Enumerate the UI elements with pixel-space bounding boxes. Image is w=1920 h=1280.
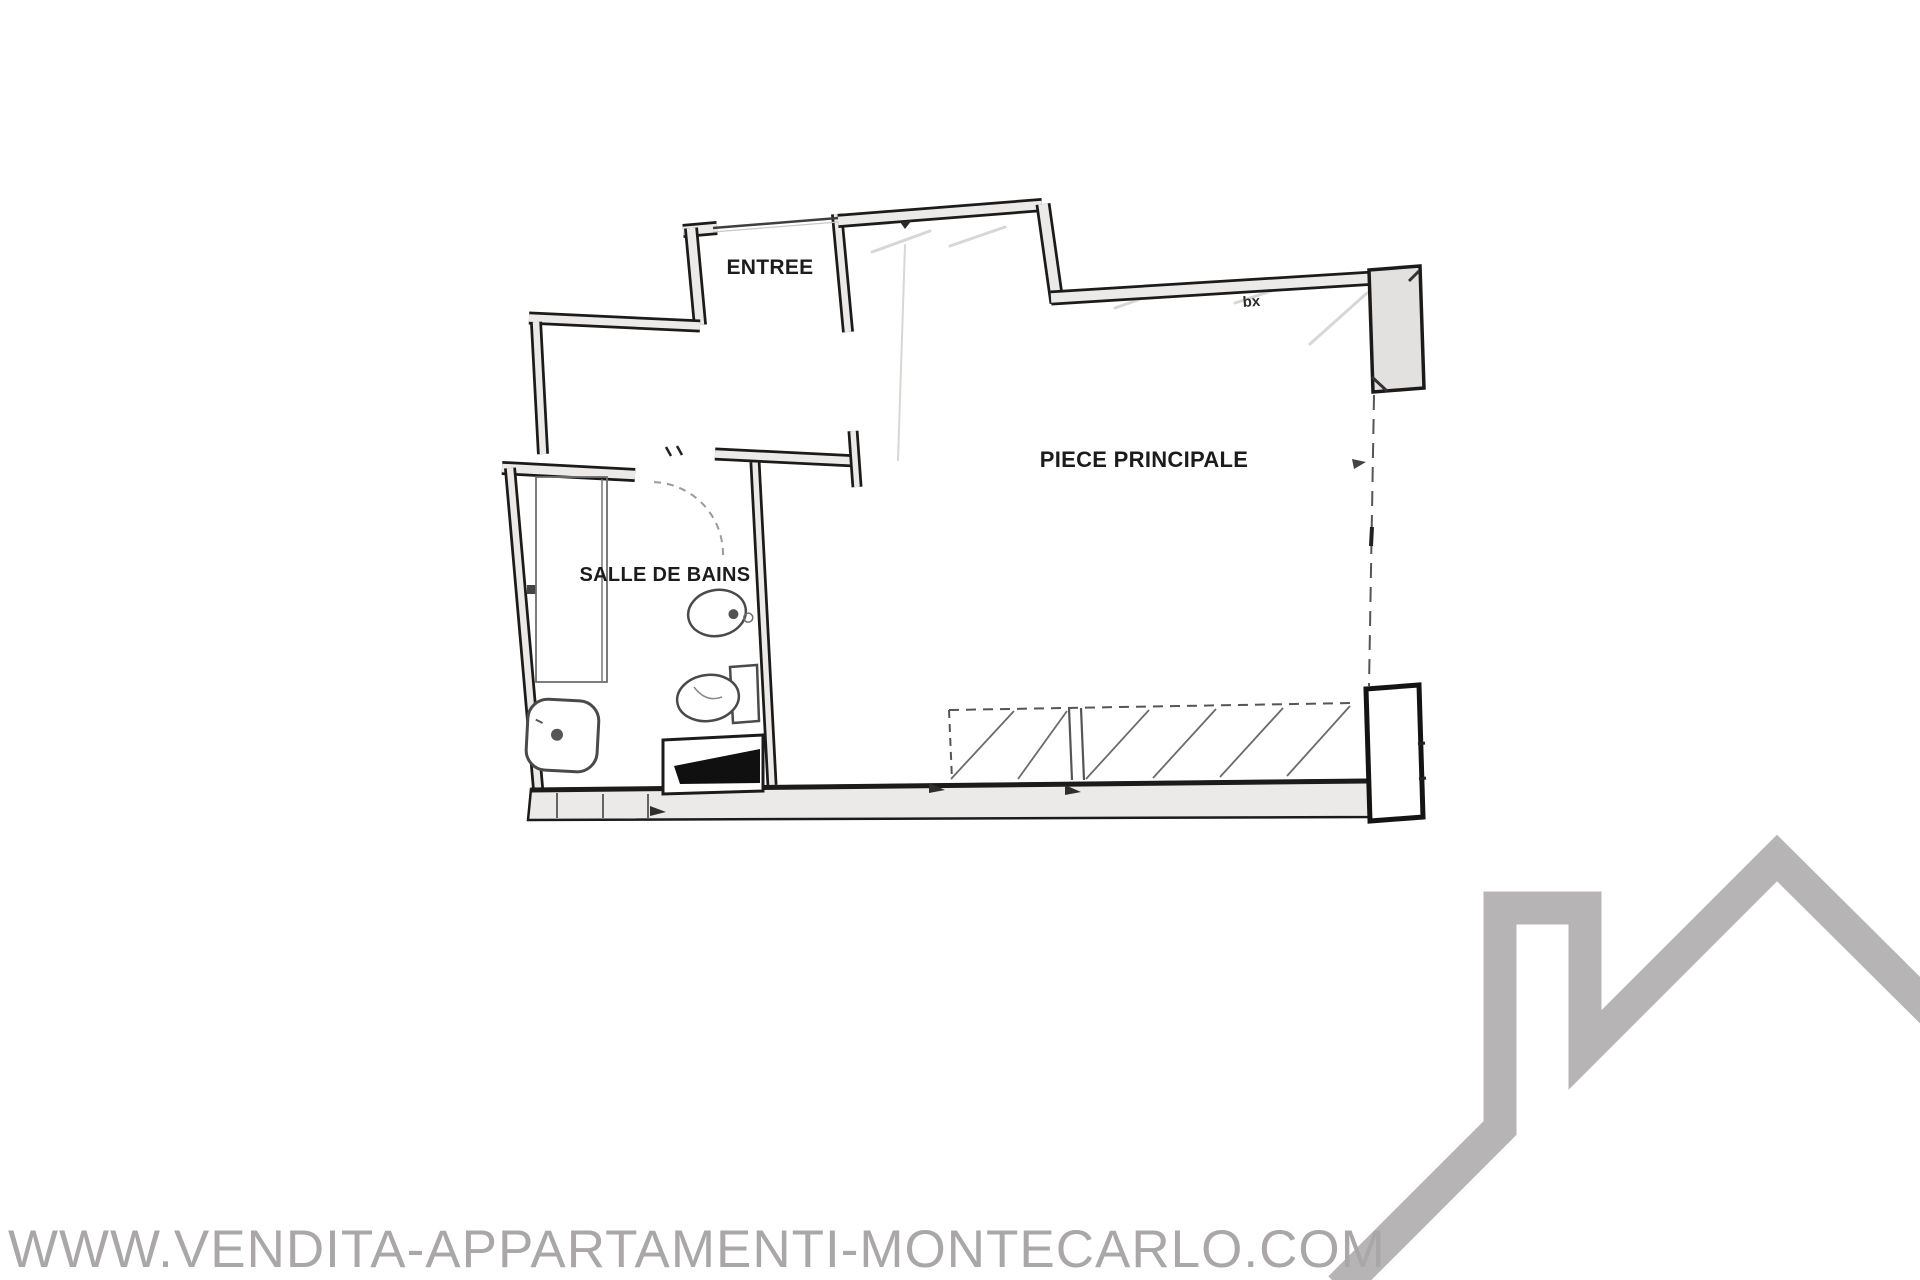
floor-plan-page: ENTREE PIECE PRINCIPALE SALLE DE BAINS b…: [0, 0, 1920, 1280]
right-side: [1352, 266, 1426, 821]
bathroom-door-arc: [651, 482, 723, 555]
window-tick: [1371, 527, 1372, 546]
door-hinge-mark: [677, 446, 682, 455]
closet-dashed-top: [949, 703, 1353, 710]
house-roofline-logo-icon: [1340, 858, 1920, 1280]
wall-dot-mark: [527, 585, 536, 594]
room-label-piece-principale: PIECE PRINCIPALE: [1040, 447, 1249, 472]
doors: [527, 218, 912, 594]
door-hinge-mark: [666, 447, 671, 456]
threshold-niche: [663, 735, 763, 794]
pencil-shading: [872, 227, 1367, 460]
block-bottom-right: [1366, 685, 1423, 821]
toilet-icon: [674, 665, 759, 725]
closet-divider: [1069, 708, 1072, 780]
window-arrow-mark: [1352, 459, 1366, 469]
watermark-url-text: WWW.VENDITA-APPARTAMENTI-MONTECARLO.COM: [8, 1219, 1386, 1280]
floor-plan-svg: ENTREE PIECE PRINCIPALE SALLE DE BAINS b…: [0, 0, 1920, 1280]
block-tick: [1419, 778, 1426, 779]
pillar-top-right: [1369, 266, 1424, 392]
room-label-salle-de-bains: SALLE DE BAINS: [580, 564, 751, 586]
closet-divider: [1081, 708, 1084, 780]
washbasin-icon: [525, 698, 600, 773]
room-label-entree: ENTREE: [727, 256, 814, 279]
block-tick: [1418, 743, 1425, 744]
closet-diagonals: [951, 706, 1350, 779]
bathroom-fixtures: [525, 477, 759, 773]
closet-dashed-left: [949, 710, 952, 780]
wall-annotation: bx: [1242, 293, 1261, 311]
walls: [502, 204, 1375, 788]
bidet-icon: [684, 584, 755, 640]
